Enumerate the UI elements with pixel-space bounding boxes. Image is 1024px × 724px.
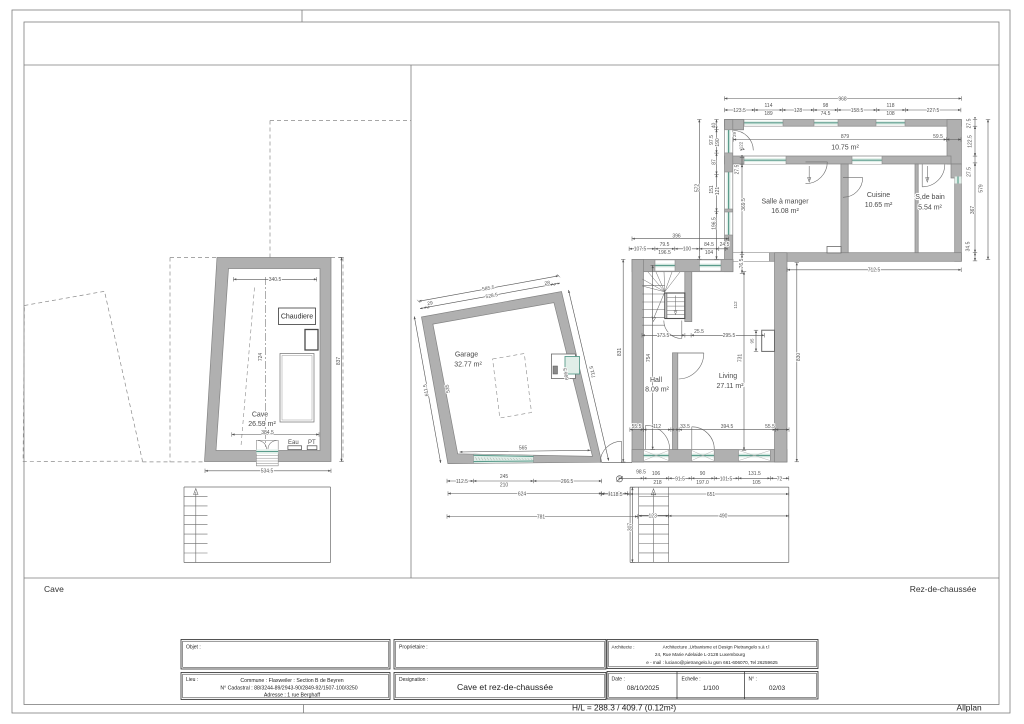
svg-text:394.5: 394.5: [721, 424, 734, 430]
svg-text:307: 307: [628, 523, 634, 532]
svg-text:97.5: 97.5: [709, 135, 715, 145]
svg-text:731: 731: [738, 354, 744, 363]
svg-text:196.5: 196.5: [658, 250, 671, 256]
svg-text:197.0: 197.0: [696, 480, 709, 486]
svg-text:84.5: 84.5: [704, 242, 714, 248]
svg-text:N° :: N° :: [749, 677, 757, 683]
svg-text:830: 830: [796, 353, 802, 362]
svg-text:55.5: 55.5: [765, 424, 775, 430]
svg-text:396: 396: [672, 234, 681, 240]
svg-text:Adresse : 1 rue Berghaff: Adresse : 1 rue Berghaff: [264, 693, 321, 699]
svg-text:29: 29: [732, 132, 737, 138]
svg-text:227.5: 227.5: [927, 108, 940, 114]
svg-text:245: 245: [500, 474, 509, 480]
svg-text:Chaudiere: Chaudiere: [281, 314, 313, 321]
svg-text:104: 104: [705, 250, 714, 256]
svg-text:173.5: 173.5: [657, 333, 670, 339]
svg-text:Rez-de-chaussée: Rez-de-chaussée: [910, 584, 977, 594]
svg-text:121: 121: [715, 187, 721, 196]
svg-text:Allplan: Allplan: [957, 703, 982, 713]
svg-text:S,de bain: S,de bain: [915, 194, 945, 201]
svg-text:572: 572: [695, 184, 701, 193]
svg-text:Proprietaire :: Proprietaire :: [399, 645, 428, 651]
svg-text:101.5: 101.5: [720, 476, 733, 482]
svg-text:Echelle :: Echelle :: [682, 677, 701, 683]
svg-text:32.77 m²: 32.77 m²: [454, 362, 482, 369]
svg-text:651: 651: [707, 492, 716, 498]
svg-text:565: 565: [519, 446, 528, 452]
svg-text:H/L = 288.3 / 409.7 (0.12m²): H/L = 288.3 / 409.7 (0.12m²): [572, 703, 676, 713]
svg-text:91.5: 91.5: [675, 476, 685, 482]
svg-text:151: 151: [709, 185, 715, 194]
svg-text:24.5: 24.5: [720, 242, 730, 248]
svg-text:87: 87: [711, 159, 717, 165]
svg-text:Garage: Garage: [455, 352, 478, 359]
svg-text:1/100: 1/100: [703, 685, 720, 692]
svg-text:95: 95: [750, 338, 755, 344]
svg-text:196.5: 196.5: [711, 217, 717, 230]
svg-text:837: 837: [336, 357, 342, 366]
svg-text:Objet :: Objet :: [186, 645, 201, 651]
svg-text:122: 122: [739, 141, 744, 149]
svg-text:712.5: 712.5: [868, 268, 881, 274]
svg-text:25.5: 25.5: [694, 329, 704, 335]
svg-text:218: 218: [653, 480, 662, 486]
svg-text:754: 754: [646, 354, 652, 363]
svg-text:55.5: 55.5: [632, 424, 642, 430]
svg-text:27.5: 27.5: [967, 167, 973, 177]
svg-text:79.5: 79.5: [660, 242, 670, 248]
svg-text:831: 831: [617, 348, 623, 357]
svg-text:40: 40: [711, 123, 717, 129]
svg-text:Date :: Date :: [612, 677, 625, 683]
svg-text:Cave: Cave: [252, 412, 268, 419]
svg-text:24, Rue Marie Adelaide L-2128: 24, Rue Marie Adelaide L-2128 Luxembourg: [655, 652, 746, 657]
svg-text:98: 98: [823, 103, 829, 109]
svg-text:624: 624: [518, 491, 527, 497]
svg-text:210: 210: [500, 482, 509, 488]
svg-text:579: 579: [979, 184, 985, 193]
svg-text:122.5: 122.5: [968, 135, 974, 148]
svg-text:367: 367: [970, 206, 976, 215]
svg-text:59.5: 59.5: [933, 134, 943, 140]
svg-text:76.5: 76.5: [739, 258, 745, 268]
svg-text:27.5: 27.5: [735, 164, 741, 174]
svg-text:131.5: 131.5: [748, 471, 761, 477]
svg-text:Cuisine: Cuisine: [867, 192, 890, 199]
svg-text:295.5: 295.5: [723, 333, 736, 339]
svg-text:112: 112: [733, 301, 738, 309]
svg-text:118.5: 118.5: [610, 492, 622, 498]
svg-text:74.5: 74.5: [821, 111, 831, 117]
svg-text:369.5: 369.5: [741, 198, 747, 211]
svg-text:e - mail : luciano@pietrangelo: e - mail : luciano@pietrangelo.lu gsm 66…: [646, 660, 778, 665]
svg-text:10.65 m²: 10.65 m²: [865, 202, 893, 209]
svg-text:879: 879: [841, 134, 850, 140]
svg-text:490: 490: [719, 514, 728, 520]
svg-text:33.5: 33.5: [680, 424, 690, 430]
svg-text:108: 108: [886, 111, 895, 117]
svg-text:114: 114: [765, 103, 773, 109]
svg-text:27.11 m²: 27.11 m²: [716, 383, 744, 390]
svg-text:08/10/2025: 08/10/2025: [627, 685, 660, 692]
svg-text:107.5: 107.5: [634, 247, 647, 253]
svg-text:8.09 m²: 8.09 m²: [645, 387, 669, 394]
svg-text:968: 968: [838, 96, 847, 102]
svg-text:100: 100: [683, 247, 692, 253]
svg-text:Eau: Eau: [288, 440, 299, 446]
svg-text:266.5: 266.5: [561, 479, 574, 485]
svg-text:724: 724: [258, 353, 264, 362]
svg-text:Architecte :: Architecte :: [612, 645, 635, 650]
svg-text:02/03: 02/03: [769, 685, 786, 692]
svg-text:190: 190: [715, 138, 721, 147]
svg-text:112: 112: [653, 424, 661, 430]
svg-text:Cave et rez-de-chaussée: Cave et rez-de-chaussée: [457, 682, 553, 692]
svg-text:98.5: 98.5: [636, 469, 646, 475]
svg-text:N° Cadastral : 88/3244-89/2943: N° Cadastral : 88/3244-89/2943-90/2849-9…: [220, 686, 357, 692]
svg-text:Hall: Hall: [650, 377, 663, 384]
svg-text:106: 106: [652, 471, 661, 477]
svg-text:PT: PT: [308, 440, 316, 446]
svg-text:112.5: 112.5: [456, 479, 468, 485]
svg-text:16.08 m²: 16.08 m²: [771, 208, 799, 215]
svg-text:5.54 m²: 5.54 m²: [918, 205, 942, 212]
svg-text:158.5: 158.5: [851, 108, 864, 114]
svg-text:Designation :: Designation :: [399, 677, 428, 683]
svg-text:123.5: 123.5: [733, 108, 746, 114]
svg-text:384.5: 384.5: [261, 430, 274, 436]
svg-text:105: 105: [752, 480, 761, 486]
svg-text:781: 781: [537, 514, 546, 520]
svg-text:118: 118: [887, 103, 895, 109]
svg-text:534.5: 534.5: [261, 469, 274, 475]
svg-text:27.5: 27.5: [966, 118, 972, 128]
svg-text:189: 189: [764, 111, 773, 117]
svg-text:123: 123: [649, 514, 658, 520]
svg-text:34.5: 34.5: [965, 241, 971, 251]
svg-text:10.75 m²: 10.75 m²: [831, 145, 859, 152]
svg-text:Living: Living: [719, 373, 737, 380]
svg-text:72: 72: [777, 476, 783, 482]
svg-text:Cave: Cave: [44, 584, 64, 594]
svg-text:26.59 m²: 26.59 m²: [248, 421, 276, 428]
svg-text:Architecture ,Urbanisme et Des: Architecture ,Urbanisme et Design Pietra…: [663, 645, 770, 650]
svg-text:Lieu :: Lieu :: [186, 677, 198, 683]
svg-text:340.5: 340.5: [269, 277, 282, 283]
svg-text:Salle à manger: Salle à manger: [761, 199, 809, 206]
svg-text:90: 90: [700, 471, 706, 477]
svg-text:128: 128: [794, 108, 803, 114]
svg-text:Commune : Flaxweiler : Section: Commune : Flaxweiler : Section B de Beyr…: [240, 678, 343, 684]
